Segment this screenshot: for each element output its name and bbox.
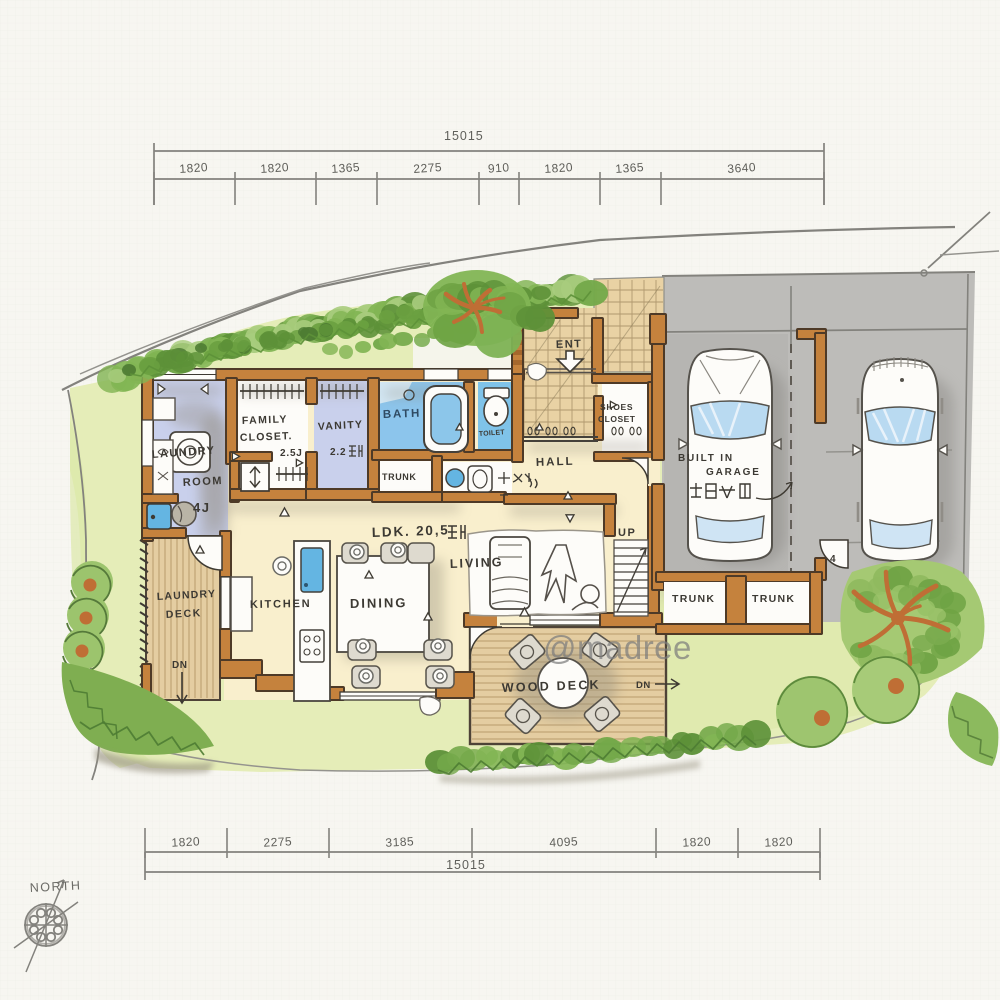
svg-text:VANITY: VANITY: [318, 419, 364, 433]
svg-text:FAMILY: FAMILY: [242, 413, 288, 427]
svg-text:1820: 1820: [179, 160, 209, 176]
svg-text:2275: 2275: [263, 834, 292, 849]
svg-text:UP: UP: [618, 527, 636, 539]
svg-text:GARAGE: GARAGE: [706, 467, 761, 478]
svg-text:15015: 15015: [444, 129, 484, 143]
svg-text:TRUNK: TRUNK: [752, 593, 795, 605]
svg-text:DN: DN: [172, 660, 187, 671]
svg-text:1365: 1365: [331, 160, 361, 176]
svg-text:HALL: HALL: [536, 456, 575, 469]
svg-text:TRUNK: TRUNK: [382, 472, 417, 482]
svg-text:4: 4: [830, 554, 836, 565]
svg-text:2.5J: 2.5J: [280, 448, 303, 459]
svg-text:TRUNK: TRUNK: [672, 593, 715, 605]
svg-text:1820: 1820: [260, 160, 290, 176]
svg-text:DN: DN: [636, 680, 651, 691]
svg-text:15015: 15015: [446, 858, 486, 872]
svg-text:2.2: 2.2: [330, 447, 346, 458]
svg-text:4J: 4J: [193, 500, 210, 515]
svg-text:1820: 1820: [171, 834, 200, 849]
svg-text:DINING: DINING: [350, 595, 408, 611]
svg-text:CLOSET: CLOSET: [598, 414, 636, 424]
svg-text:1820: 1820: [544, 160, 574, 176]
svg-text:ROOM: ROOM: [183, 475, 224, 489]
svg-text:3185: 3185: [385, 834, 414, 849]
svg-text:1820: 1820: [682, 834, 711, 849]
svg-text:910: 910: [487, 160, 509, 175]
svg-text:1820: 1820: [764, 834, 793, 849]
svg-text:4095: 4095: [549, 834, 578, 849]
svg-text:DECK: DECK: [166, 607, 203, 621]
svg-text:@madree: @madree: [543, 629, 692, 666]
svg-text:NORTH: NORTH: [29, 878, 81, 895]
svg-text:BUILT IN: BUILT IN: [678, 453, 734, 464]
svg-text:SHOES: SHOES: [600, 402, 633, 412]
svg-text:1365: 1365: [615, 160, 645, 176]
svg-text:LDK. 20,5: LDK. 20,5: [372, 522, 450, 540]
svg-text:KITCHEN: KITCHEN: [250, 598, 312, 611]
svg-text:ENT: ENT: [556, 338, 583, 351]
svg-text:3640: 3640: [727, 160, 757, 176]
svg-text:2275: 2275: [413, 160, 443, 176]
svg-text:BATH: BATH: [383, 408, 422, 421]
svg-text:CLOSET.: CLOSET.: [240, 430, 293, 444]
svg-text:LIVING: LIVING: [450, 555, 504, 571]
